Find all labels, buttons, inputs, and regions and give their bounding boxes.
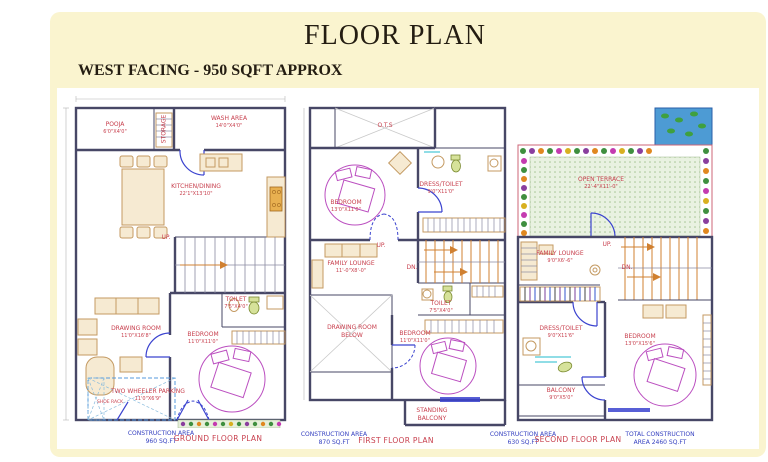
room-label-dress-toilet: DRESS/TOILET9'0"X11'0" bbox=[419, 181, 462, 195]
floor-plan-poster: FLOOR PLAN WEST FACING - 950 SQFT APPROX bbox=[0, 0, 768, 462]
room-label-bedroom2: BEDROOM11'0"X11'0" bbox=[399, 330, 430, 344]
label-dn: DN. bbox=[621, 264, 632, 272]
room-label-open-terrace: OPEN TERRACE22'-4"X11'-0" bbox=[578, 176, 624, 190]
pond bbox=[655, 108, 712, 145]
dress-toilet-fixtures bbox=[424, 152, 501, 172]
staircase bbox=[418, 240, 505, 283]
room-label-family-lounge: FAMILY LOUNGE9'0"X6'-6" bbox=[536, 250, 583, 264]
plan-name-second: SECOND FLOOR PLAN bbox=[535, 435, 622, 444]
page-title: FLOOR PLAN bbox=[50, 20, 740, 52]
page-subtitle: WEST FACING - 950 SQFT APPROX bbox=[78, 62, 342, 80]
room-label-bedroom1: BEDROOM13'0"X11'0" bbox=[330, 199, 361, 213]
balcony-door bbox=[582, 377, 605, 400]
label-up: UP. bbox=[162, 234, 171, 242]
wardrobe-bedroom bbox=[425, 320, 503, 333]
bedroom-bench bbox=[643, 305, 686, 318]
label-dn: DN. bbox=[406, 264, 417, 272]
room-label-storage: STORAGE bbox=[160, 115, 168, 144]
room-label-dress-toilet: DRESS/TOILET9'0"X11'6" bbox=[539, 325, 582, 339]
wardrobe-bedroom bbox=[703, 315, 711, 385]
plan-name-first: FIRST FLOOR PLAN bbox=[358, 436, 434, 445]
wardrobe bbox=[232, 331, 285, 344]
room-label-kitchen-dining: KITCHEN/DINING22'1"X13'10" bbox=[171, 183, 221, 197]
staircase bbox=[175, 237, 285, 293]
room-label-bedroom: BEDROOM11'0"X11'0" bbox=[187, 331, 218, 345]
room-label-bedroom: BEDROOM13'0"X15'6" bbox=[624, 333, 655, 347]
room-label-drawing-room: DRAWING ROOM11'0"X16'8" bbox=[111, 325, 161, 339]
room-label-shoe-rack: SHOE RACK bbox=[97, 400, 123, 406]
room-label-toilet: TOILET7'5"X4'0" bbox=[224, 296, 248, 310]
terrace bbox=[518, 145, 712, 237]
wardrobe bbox=[520, 287, 600, 301]
label-up: UP. bbox=[377, 242, 386, 250]
plan-name-ground: GROUND FLOOR PLAN bbox=[174, 434, 263, 443]
sliding-door bbox=[608, 408, 650, 412]
dining-table bbox=[120, 156, 167, 238]
bed-icon bbox=[325, 165, 385, 225]
ground-floor-drawing bbox=[62, 95, 288, 428]
side-table bbox=[389, 152, 412, 175]
bedroom-door bbox=[392, 345, 415, 368]
room-label-ots: O.T.S bbox=[377, 122, 392, 130]
washer-icon bbox=[590, 265, 600, 275]
bed-icon bbox=[634, 344, 696, 406]
dress-toilet-door bbox=[573, 302, 597, 326]
dress-toilet-fixtures bbox=[523, 338, 573, 374]
up-arrow-icon bbox=[220, 261, 228, 269]
room-label-family-lounge: FAMILY LOUNGE11'-0"X8'-0" bbox=[327, 260, 374, 274]
room-label-toilet: TOILET7'5"X4'0" bbox=[429, 300, 453, 314]
room-label-balcony: BALCONY9'0"X5'0" bbox=[547, 387, 576, 401]
construction-area-first: CONSTRUCTION AREA870 SQ.FT bbox=[301, 431, 367, 446]
room-label-pooja: POOJA6'0"X4'0" bbox=[103, 121, 127, 135]
total-construction-area: TOTAL CONSTRUCTIONAREA 2460 SQ.FT bbox=[625, 431, 694, 446]
entrance-doors bbox=[117, 400, 209, 420]
room-label-standing-balcony: STANDINGBALCONY bbox=[416, 407, 447, 422]
second-floor-drawing bbox=[513, 105, 718, 432]
bed-icon bbox=[420, 338, 476, 394]
room-label-drawing-below: DRAWING ROOMBELOW bbox=[327, 324, 377, 339]
wardrobe bbox=[423, 218, 505, 232]
balcony-sliding-door bbox=[440, 397, 480, 402]
bed-icon bbox=[199, 346, 265, 412]
label-up: UP. bbox=[603, 241, 612, 249]
flower-bed bbox=[178, 420, 281, 428]
sofa-set bbox=[78, 298, 159, 395]
room-label-wash-area: WASH AREA14'0"X4'0" bbox=[211, 115, 247, 129]
